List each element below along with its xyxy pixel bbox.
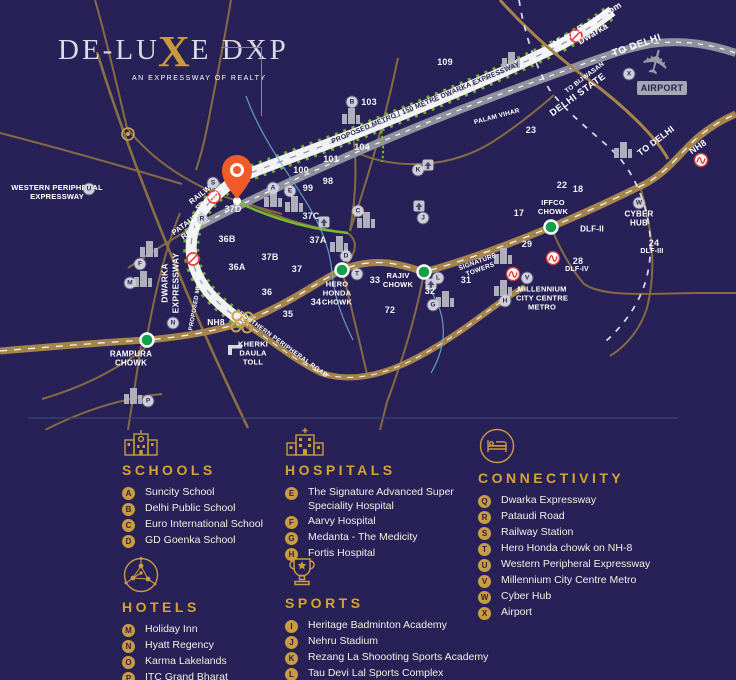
legend-item-label: Heritage Badminton Academy [308,619,447,633]
metro-station-icon [695,154,708,167]
building-icon [436,291,454,307]
sector-37c: 37C [302,211,319,221]
chowk-marker [545,221,558,234]
legend-item: U Western Peripheral Expressway [478,558,688,572]
map-marker-C: C [353,206,364,217]
legend-item: F Aarvy Hospital [285,515,470,529]
legend-hospitals: HOSPITALS E The Signature Advanced Super… [285,428,470,563]
map-marker-R: R [197,214,208,225]
legend-item: R Pataudi Road [478,510,688,524]
legend-item: M Holiday Inn [122,623,312,637]
building-icon [285,196,303,212]
sector-36a: 36A [228,262,245,272]
marker-badge: P [122,672,135,680]
legend-item-label: Hyatt Regency [145,639,214,653]
metro-station-icon [547,252,560,265]
sector-37: 37 [292,264,302,274]
marker-badge: J [285,636,298,649]
hospital-icon [285,428,325,457]
road-label-nh8-sw: NH8 [207,317,225,327]
sector-99: 99 [303,183,313,193]
marker-badge: L [285,668,298,680]
marker-badge: Q [478,495,491,508]
chowk-marker [141,334,154,347]
map-marker-X: X [624,69,635,80]
sector-32: 32 [425,286,435,296]
legend-item-label: Holiday Inn [145,623,198,637]
sector-36b: 36B [218,234,235,244]
marker-badge: B [122,503,135,516]
railway-crossing-icon [187,253,199,265]
legend-item: B Delhi Public School [122,502,312,516]
legend-item: K Rezang La Shoooting Sports Academy [285,651,495,665]
map-marker-U: U [84,184,95,195]
legend-item: P ITC Grand Bharat [122,671,312,680]
bed-icon [478,427,516,465]
sector-18: 18 [573,184,583,194]
marker-badge: T [478,543,491,556]
sector-17: 17 [514,208,524,218]
sector-31: 31 [461,275,471,285]
chowk-marker [418,266,431,279]
legend-item: E The Signature Advanced Super Specialit… [285,486,470,513]
sector-37a: 37A [309,235,326,245]
marker-badge: D [122,535,135,548]
legend-item-label: Karma Lakelands [145,655,227,669]
temple-icon [414,201,425,212]
sector-29: 29 [522,239,532,249]
sector-100: 100 [293,165,309,175]
school-icon [122,430,160,457]
label-dlf3: DLF-III [640,248,663,256]
map-marker-V: V [522,273,533,284]
map-marker-L: L [433,273,444,284]
legend-item-label: Hero Honda chowk on NH-8 [501,542,632,556]
legend-hotels: HOTELS M Holiday Inn N Hyatt Regency O K… [122,556,312,680]
map-marker-E: E [285,186,296,197]
label-rampura-chowk: RAMPURA CHOWK [101,350,161,369]
map-legend-divider [28,417,678,419]
legend-item-label: Delhi Public School [145,502,235,516]
legend-item-label: Nehru Stadium [308,635,378,649]
legend-item-label: Pataudi Road [501,510,565,524]
marker-badge: C [122,519,135,532]
legend-item-label: Railway Station [501,526,573,540]
map-marker-H: H [500,296,511,307]
airport-label: AIRPORT [637,81,687,95]
marker-badge: K [285,652,298,665]
legend-item: S Railway Station [478,526,688,540]
label-cyber-hub: CYBER HUB [619,210,659,229]
sector-72: 72 [385,305,395,315]
map-marker-P: P [143,396,154,407]
marker-badge: O [122,656,135,669]
building-icon [124,388,142,404]
legend-item: G Medanta - The Medicity [285,531,470,545]
building-icon [140,241,158,257]
legend-item-label: Medanta - The Medicity [308,531,418,545]
legend-connectivity-title: CONNECTIVITY [478,470,688,486]
legend-item-label: Tau Devi Lal Sports Complex [308,667,443,680]
map-marker-K: K [413,165,424,176]
marker-badge: S [478,527,491,540]
legend-item: A Suncity School [122,486,312,500]
network-globe-icon [122,556,160,594]
building-icon [134,271,152,287]
legend-item-label: Airport [501,606,532,620]
map-marker-D: D [341,251,352,262]
label-millennium-metro: MILLENNIUM CITY CENTRE METRO [508,286,576,313]
marker-badge: I [285,620,298,633]
marker-badge: R [478,511,491,524]
legend-item: V Millennium City Centre Metro [478,574,688,588]
sector-109: 109 [437,57,453,67]
legend-sports: SPORTS I Heritage Badminton Academy J Ne… [285,556,495,680]
legend-item: Q Dwarka Expressway [478,494,688,508]
legend-item-label: Rezang La Shoooting Sports Academy [308,651,488,665]
metro-station-icon [507,268,520,281]
building-icon [342,108,360,124]
map-marker-S: S [208,178,219,189]
marker-badge: A [122,487,135,500]
label-iffco-chowk: IFFCO CHOWK [530,199,576,217]
label-kherki-daula-toll: KHERKI DAULA TOLL [229,341,277,368]
label-dlf4: DLF-IV [565,266,589,274]
temple-icon [319,217,330,228]
map-marker-A: A [268,183,279,194]
sector-104: 104 [354,142,370,152]
chowk-marker [336,264,349,277]
road-label-dwarka-expressway-side: DWARKA EXPRESSWAY [160,240,183,326]
legend-connectivity: CONNECTIVITY Q Dwarka Expressway R Patau… [478,427,688,622]
minor-road [380,272,424,430]
legend-hotels-title: HOTELS [122,599,312,615]
legend-item: I Heritage Badminton Academy [285,619,495,633]
sector-98: 98 [323,176,333,186]
legend-hospitals-title: HOSPITALS [285,462,470,478]
sector-33: 33 [370,275,380,285]
map-marker-J: J [418,213,429,224]
sector-103: 103 [361,97,377,107]
sector-22: 22 [557,180,567,190]
legend-item-label: GD Goenka School [145,534,235,548]
minor-road [0,133,182,184]
label-dlf2: DLF-II [580,224,604,233]
sector-35: 35 [283,309,293,319]
legend-item: W Cyber Hub [478,590,688,604]
palam-vihar-road [355,95,554,164]
legend-item: O Karma Lakelands [122,655,312,669]
marker-badge: F [285,516,298,529]
legend-item-label: Cyber Hub [501,590,551,604]
legend-sports-title: SPORTS [285,595,495,611]
map-marker-T: T [352,269,363,280]
green-metro-dash [381,131,383,162]
location-map-page: ✈ Metro Route from Dwarka TO DELHI NH8 T… [0,0,736,680]
logo-connector-line [221,47,262,116]
map-marker-B: B [347,97,358,108]
legend-item-label: Dwarka Expressway [501,494,596,508]
legend-item-label: Euro International School [145,518,263,532]
legend-item-label: ITC Grand Bharat [145,671,228,680]
logo-tagline: AN EXPRESSWAY OF REALTY [132,75,289,82]
marker-badge: E [285,487,298,500]
sector-101: 101 [323,154,339,164]
map-marker-M: M [125,278,136,289]
legend-item: T Hero Honda chowk on NH-8 [478,542,688,556]
legend-item: L Tau Devi Lal Sports Complex [285,667,495,680]
legend-item: N Hyatt Regency [122,639,312,653]
map-marker-F: F [135,259,146,270]
legend-item: X Airport [478,606,688,620]
sector-24: 24 [649,238,659,248]
map-marker-G: G [428,300,439,311]
legend-schools-title: SCHOOLS [122,462,312,478]
legend-item-label: Millennium City Centre Metro [501,574,636,588]
legend-item: C Euro International School [122,518,312,532]
legend-item-label: The Signature Advanced Super Speciality … [308,486,468,513]
temple-icon [423,160,434,171]
label-rajiv-chowk: RAJIV CHOWK [377,272,419,290]
sector-34: 34 [311,297,321,307]
sector-28: 28 [573,256,583,266]
logo-x-mark: X [158,27,193,76]
legend-item-label: Aarvy Hospital [308,515,376,529]
building-icon [614,142,632,158]
legend-item-label: Western Peripheral Expressway [501,558,650,572]
legend-item-label: Suncity School [145,486,214,500]
map-marker-W: W [634,198,645,209]
legend-item: J Nehru Stadium [285,635,495,649]
map-marker-N: N [168,318,179,329]
marker-badge: N [122,640,135,653]
legend-schools: SCHOOLS A Suncity School B Delhi Public … [122,430,312,550]
marker-badge: G [285,532,298,545]
sector-37b: 37B [261,252,278,262]
sector-36: 36 [262,287,272,297]
sector-37d: 37D [224,204,241,214]
legend-item: D GD Goenka School [122,534,312,548]
sector-23: 23 [526,125,536,135]
marker-badge: M [122,624,135,637]
trophy-icon [285,556,319,590]
